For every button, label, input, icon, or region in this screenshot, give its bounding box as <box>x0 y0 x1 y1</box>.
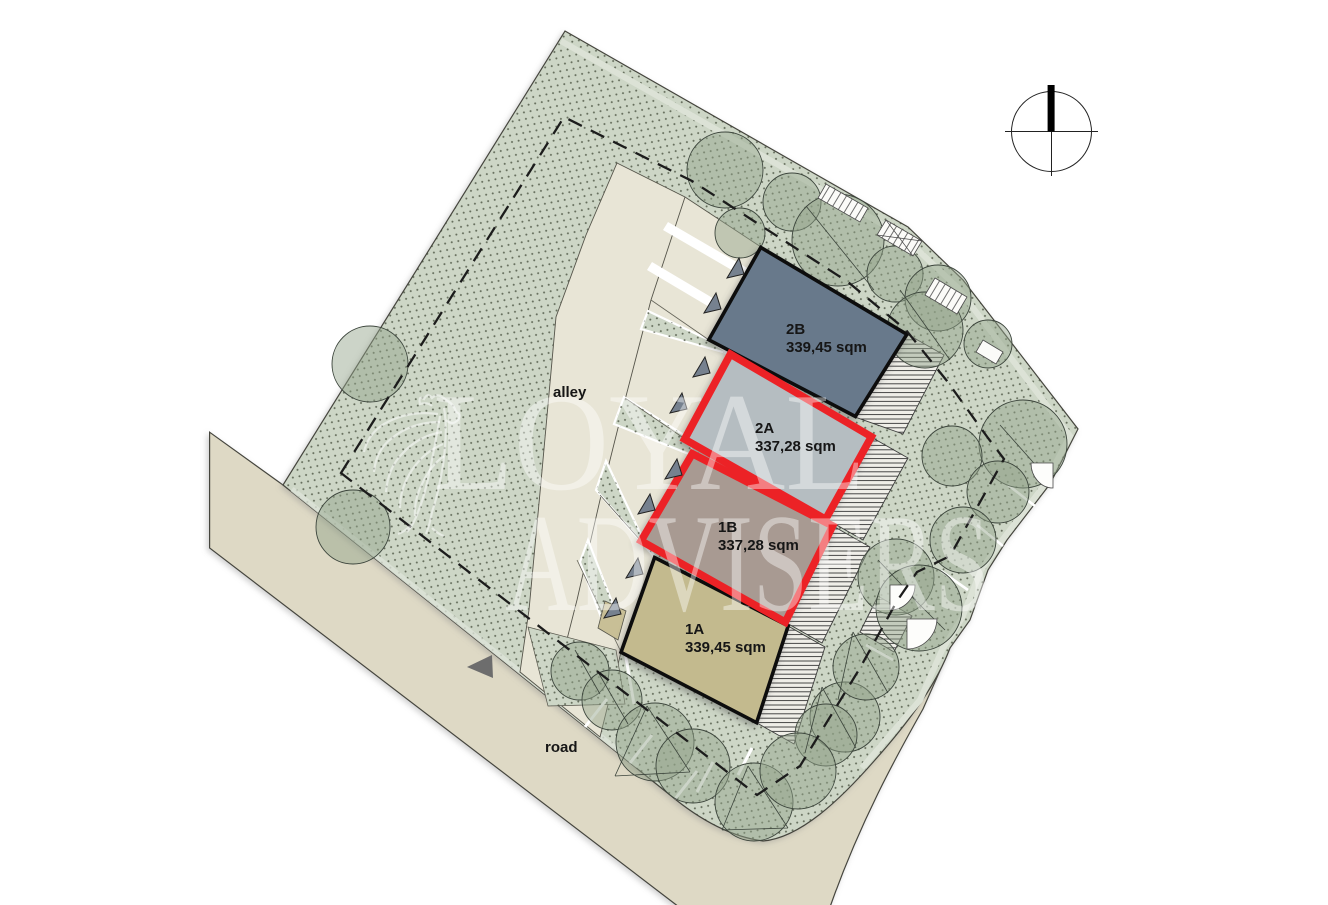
svg-text:339,45 sqm: 339,45 sqm <box>685 639 766 656</box>
svg-text:alley: alley <box>553 384 587 401</box>
svg-text:1B: 1B <box>718 519 737 536</box>
svg-text:ADVISERS: ADVISERS <box>505 486 990 641</box>
svg-text:337,28 sqm: 337,28 sqm <box>718 537 799 554</box>
svg-text:339,45 sqm: 339,45 sqm <box>786 339 867 356</box>
svg-text:road: road <box>545 739 578 756</box>
svg-text:337,28 sqm: 337,28 sqm <box>755 438 836 455</box>
svg-text:2A: 2A <box>755 420 774 437</box>
svg-text:1A: 1A <box>685 621 704 638</box>
svg-text:2B: 2B <box>786 321 805 338</box>
